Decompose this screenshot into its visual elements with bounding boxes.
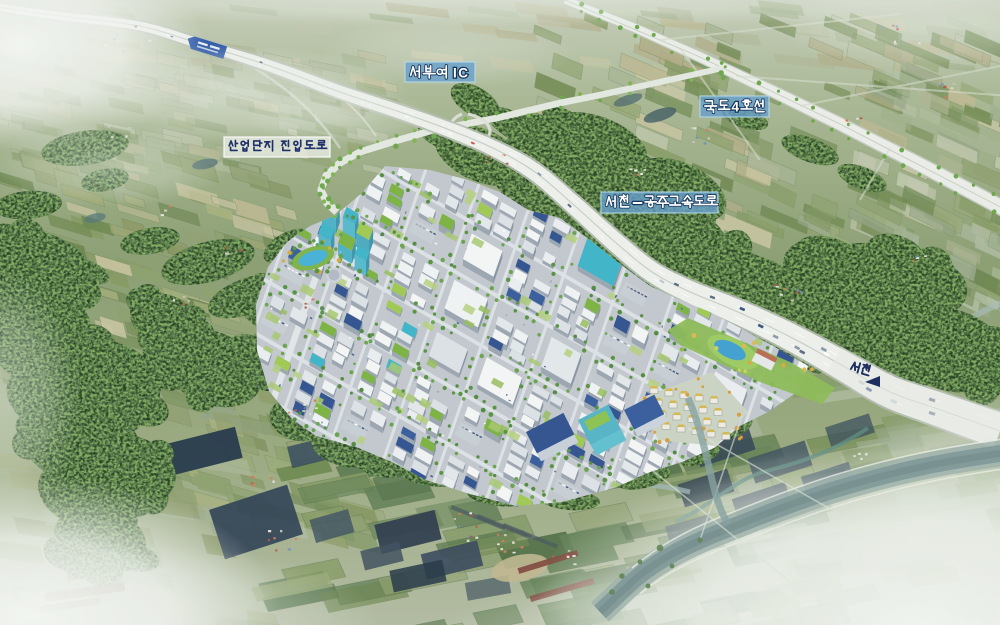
svg-text:IC: IC — [453, 66, 470, 81]
svg-text:4: 4 — [732, 100, 740, 115]
